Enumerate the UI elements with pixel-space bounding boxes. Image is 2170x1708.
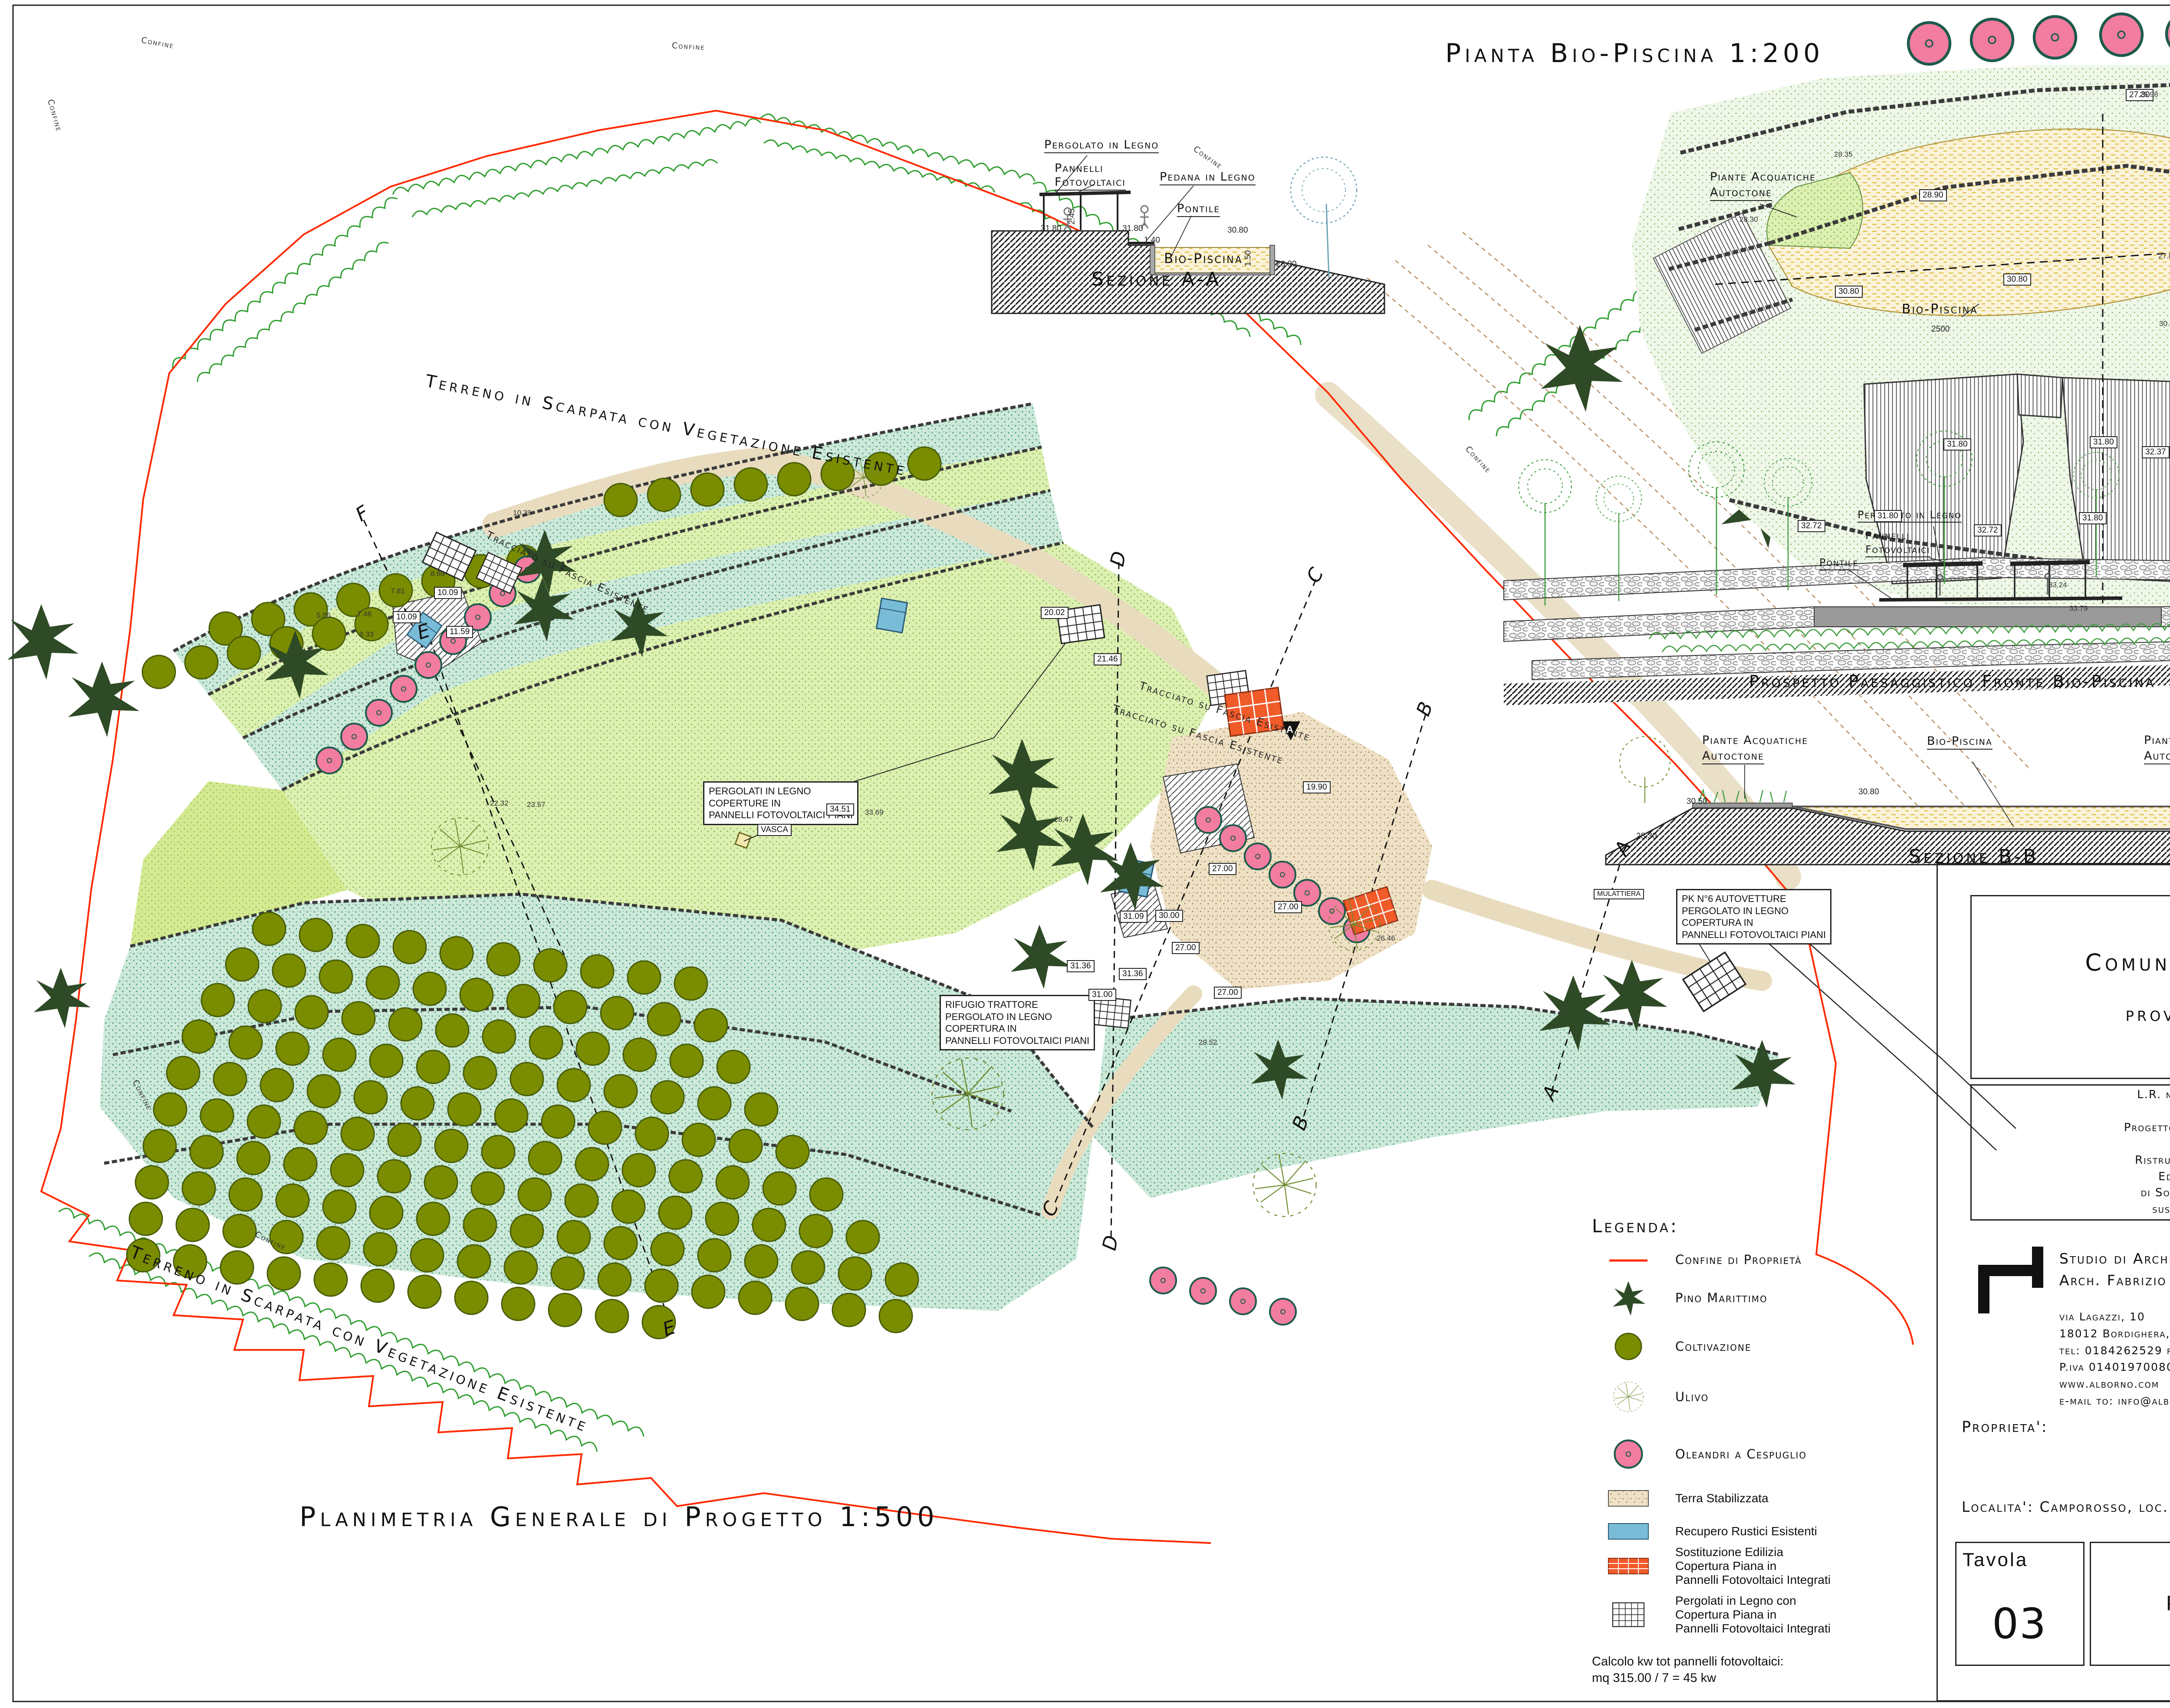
main-plan-title: Planimetria Generale di Progetto 1:500 (299, 1501, 939, 1533)
elevation-label: 27.00 (1209, 863, 1236, 875)
spot-elevation: 22.32 (490, 799, 509, 808)
tavola-box: Tavola 03 (1955, 1542, 2085, 1666)
drawing-canvas (0, 0, 2170, 1708)
sezb-piante-left-1: Piante Acquatiche (1702, 734, 1808, 747)
callout-parcheggio: PK N°6 AUTOVETTURE PERGOLATO IN LEGNO CO… (1676, 889, 1831, 945)
seza-pergolato-label: Pergolato in Legno (1044, 138, 1159, 153)
elevation-label: 31.80 (1874, 510, 1902, 522)
bio-plan-title: Pianta Bio-Piscina 1:200 (1445, 38, 1824, 69)
elevation-label: 10.09 (393, 611, 421, 623)
elevation-label: 32.37 (2142, 446, 2170, 458)
elevation-label: 32.72 (1974, 524, 2002, 536)
elevation-label: 31.36 (1119, 968, 1147, 980)
spot-elevation: 10.39 (513, 509, 532, 517)
elevation-label: 30.80 (1835, 286, 1863, 298)
spot-elevation: 28.47 (1054, 815, 1073, 824)
bio-piscina-label: Bio-Piscina (1902, 302, 1978, 317)
legend-calc: Calcolo kw tot pannelli fotovoltaici:mq … (1592, 1654, 1784, 1686)
provincia-title: provincia di Imperia (2126, 1002, 2170, 1026)
elevation-label: 10.09 (434, 587, 462, 599)
seza-pannelli-label-1: Pannelli (1055, 161, 1103, 175)
dimension-label: 31.80 (1041, 224, 1062, 234)
spot-elevation: 26.46 (1377, 934, 1395, 943)
sezb-biopiscina-label: Bio-Piscina (1927, 734, 1992, 750)
spot-elevation: 27.84 (2158, 252, 2170, 260)
dimension-label: 30.80 (1858, 787, 1879, 797)
law-box: L.R. n 49/2009 e sue modifiche edintegra… (1970, 1084, 2170, 1221)
dimension-label: 1.50 (1243, 250, 1253, 267)
proprieta-label: Proprieta': (1962, 1418, 2048, 1436)
seza-pedana-label: Pedana in Legno (1160, 170, 1256, 185)
elevation-label: 31.09 (1120, 911, 1147, 923)
pros-pannelli-label-2: Fotovoltaici (1865, 543, 1930, 557)
sezb-piante-right-1: Piante Acquatiche (2144, 734, 2170, 747)
dimension-label: 30.50 (1687, 797, 1707, 806)
legend-item-recupero: Recupero Rustici Esistenti (1606, 1514, 1817, 1549)
elevation-label: 32.72 (1798, 520, 1825, 532)
comune-title: Comune di Camporosso (2085, 949, 2170, 976)
elevation-label: 21.46 (1094, 653, 1121, 665)
aquatic-plants (1699, 789, 2170, 802)
localita-label: Localita': Camporosso, loc. Martinazzi (1962, 1498, 2170, 1515)
vasca-tag: VASCA (757, 824, 792, 836)
elevation-label: 27.00 (1172, 942, 1200, 954)
elevation-label: 11.59 (446, 626, 473, 638)
spot-elevation: 23.57 (527, 800, 546, 809)
mulattiera-tag: MULATTIERA (1594, 889, 1644, 899)
spot-elevation: 30.45 (2159, 319, 2170, 328)
pros-pergolato-label: Pergolato in Legno (1858, 509, 1962, 523)
prospetto-title: Prospetto Paesaggistico Fronte Bio-Pisci… (1749, 672, 2156, 691)
dimension-label: 28.90 (1276, 260, 1297, 269)
sezione-a-title: Sezione A-A (1092, 268, 1221, 290)
legend-item-confine: Confine di Proprietà (1606, 1242, 1802, 1277)
legend-item-sostituzione: Sostituzione EdiliziaCopertura Piana inP… (1606, 1545, 1831, 1587)
elevation-label: 20.02 (1041, 607, 1069, 619)
spot-elevation: 5.56 (316, 611, 331, 620)
legend-title: Legenda: (1592, 1215, 1679, 1237)
elevation-label: 27.00 (1214, 987, 1242, 999)
seza-pannelli-label-2: Fotovoltaici (1055, 175, 1126, 191)
callout-rifugio: RIFUGIO TRATTORE PERGOLATO IN LEGNO COPE… (940, 995, 1095, 1050)
tavola-number: 03 (1992, 1599, 2047, 1648)
bio-piante-left-2: Autoctone (1710, 186, 1772, 201)
elevation-label: 31.80 (1943, 438, 1971, 451)
pros-pannelli-label-1: Pannelli (1865, 530, 1910, 542)
legend-item-coltivazione: Coltivazione (1606, 1329, 1752, 1364)
elevation-label: 31.00 (1088, 989, 1116, 1001)
spot-elevation: 33.79 (2069, 604, 2088, 613)
dimension-label: 1.40 (1144, 236, 1160, 245)
elevation-label: 30.80 (2003, 273, 2031, 286)
bio-piante-left-1: Piante Acquatiche (1710, 170, 1816, 184)
dimension-label: 30.80 (1227, 226, 1248, 235)
studio-address: via Lagazzi, 1018012 Bordighera, IM tel:… (2059, 1309, 2170, 1410)
elevation-label: 31.36 (1067, 960, 1095, 972)
pros-pontile-label: Pontile (1819, 556, 1858, 570)
legend-item-pergolati: Pergolati in Legno conCopertura Piana in… (1606, 1594, 1831, 1636)
confine-label: Confine (671, 41, 705, 52)
comune-box: Comune di Camporosso provincia di Imperi… (1970, 895, 2170, 1079)
drawing-sheet: Pianta Bio-Piscina 1:200 Planimetria Gen… (0, 0, 2170, 1708)
legend-item-terra: Terra Stabilizzata (1606, 1481, 1769, 1516)
elevation-label: 34.51 (826, 803, 854, 816)
spot-elevation: 25.98 (2140, 90, 2158, 99)
spot-elevation: 29.52 (1199, 1038, 1217, 1047)
legend-item-oleandri: Oleandri a Cespuglio (1606, 1437, 1807, 1471)
dimension-label: 2.45 (1067, 209, 1077, 225)
spot-elevation: 8.69 (431, 569, 445, 578)
elevation-label: 27.00 (1274, 901, 1302, 913)
studio-logo (1978, 1247, 2048, 1316)
progetto-box: Progetto Planimetria Generale (2090, 1542, 2170, 1666)
studio-name-1: Studio di Architettura (2059, 1250, 2170, 1267)
spot-elevation: 9.33 (359, 630, 374, 639)
seza-biopiscina-label: Bio-Piscina (1164, 251, 1243, 267)
dimension-label: 28.30 (1636, 832, 1657, 841)
spot-elevation: 33.24 (2048, 581, 2067, 589)
elevation-label: 19.90 (1303, 781, 1331, 793)
section-marker-a-letter: A (1286, 724, 1293, 735)
spot-elevation: 33.69 (865, 808, 884, 817)
sezb-piante-left-2: Autoctone (1702, 749, 1764, 764)
elevation-label: 31.80 (2090, 436, 2117, 448)
sezb-piante-right-2: Autoctone (2144, 749, 2170, 764)
legend-item-ulivo: Ulivo (1606, 1379, 1709, 1414)
elevation-label: 28.90 (1919, 189, 1947, 201)
bio-piscina-dim: 2500 (1931, 325, 1950, 334)
spot-elevation: 7.48 (357, 610, 372, 619)
spot-elevation: 28.30 (1739, 215, 1758, 224)
spot-elevation: 7.81 (391, 587, 405, 596)
elevation-label: 31.80 (2079, 512, 2107, 524)
legend-item-pino: Pino Marittimo (1606, 1280, 1768, 1315)
dimension-label: 31.80 (1122, 224, 1143, 234)
studio-name-2: Arch. Fabrizio Alborno (2059, 1272, 2170, 1289)
tavola-label: Tavola (1963, 1549, 2028, 1571)
elevation-label: 30.00 (1155, 910, 1183, 922)
seza-pontile-label: Pontile (1177, 202, 1220, 217)
spot-elevation: 28.35 (1834, 150, 1853, 159)
